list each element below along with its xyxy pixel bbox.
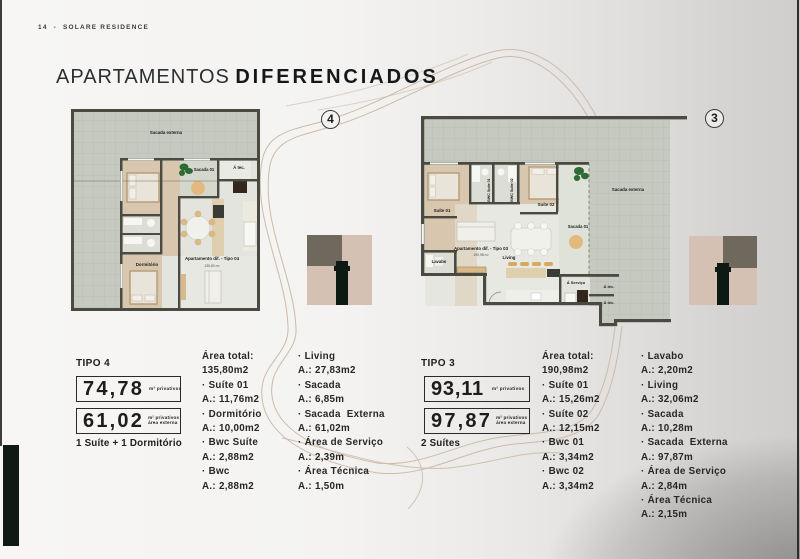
svg-text:Dormitório: Dormitório — [136, 262, 159, 267]
svg-text:190,98 m²: 190,98 m² — [473, 253, 489, 257]
svg-text:Sacada 01: Sacada 01 — [568, 224, 589, 229]
svg-text:Sacada externa: Sacada externa — [612, 187, 645, 192]
svg-text:BWC Suíte 02: BWC Suíte 02 — [510, 178, 514, 201]
svg-text:Sacada externa: Sacada externa — [150, 130, 183, 135]
svg-text:Apartamento dif. - Tipo 04: Apartamento dif. - Tipo 04 — [185, 256, 240, 261]
svg-text:Suíte 01: Suíte 01 — [434, 208, 451, 213]
svg-text:Á téc.: Á téc. — [604, 284, 615, 289]
svg-text:135,80 m²: 135,80 m² — [204, 264, 220, 268]
svg-text:BWC Suíte 01: BWC Suíte 01 — [487, 178, 491, 201]
svg-text:Lavabo: Lavabo — [432, 259, 447, 264]
svg-text:Á tec.: Á tec. — [233, 165, 244, 170]
svg-text:Suíte 02: Suíte 02 — [538, 202, 555, 207]
svg-text:Living: Living — [503, 255, 516, 260]
svg-text:Á Serviço: Á Serviço — [567, 280, 586, 285]
svg-text:Á téc.: Á téc. — [604, 300, 615, 305]
svg-text:Apartamento dif. - Tipo 03: Apartamento dif. - Tipo 03 — [454, 246, 509, 251]
svg-text:Sacada 01: Sacada 01 — [194, 167, 215, 172]
